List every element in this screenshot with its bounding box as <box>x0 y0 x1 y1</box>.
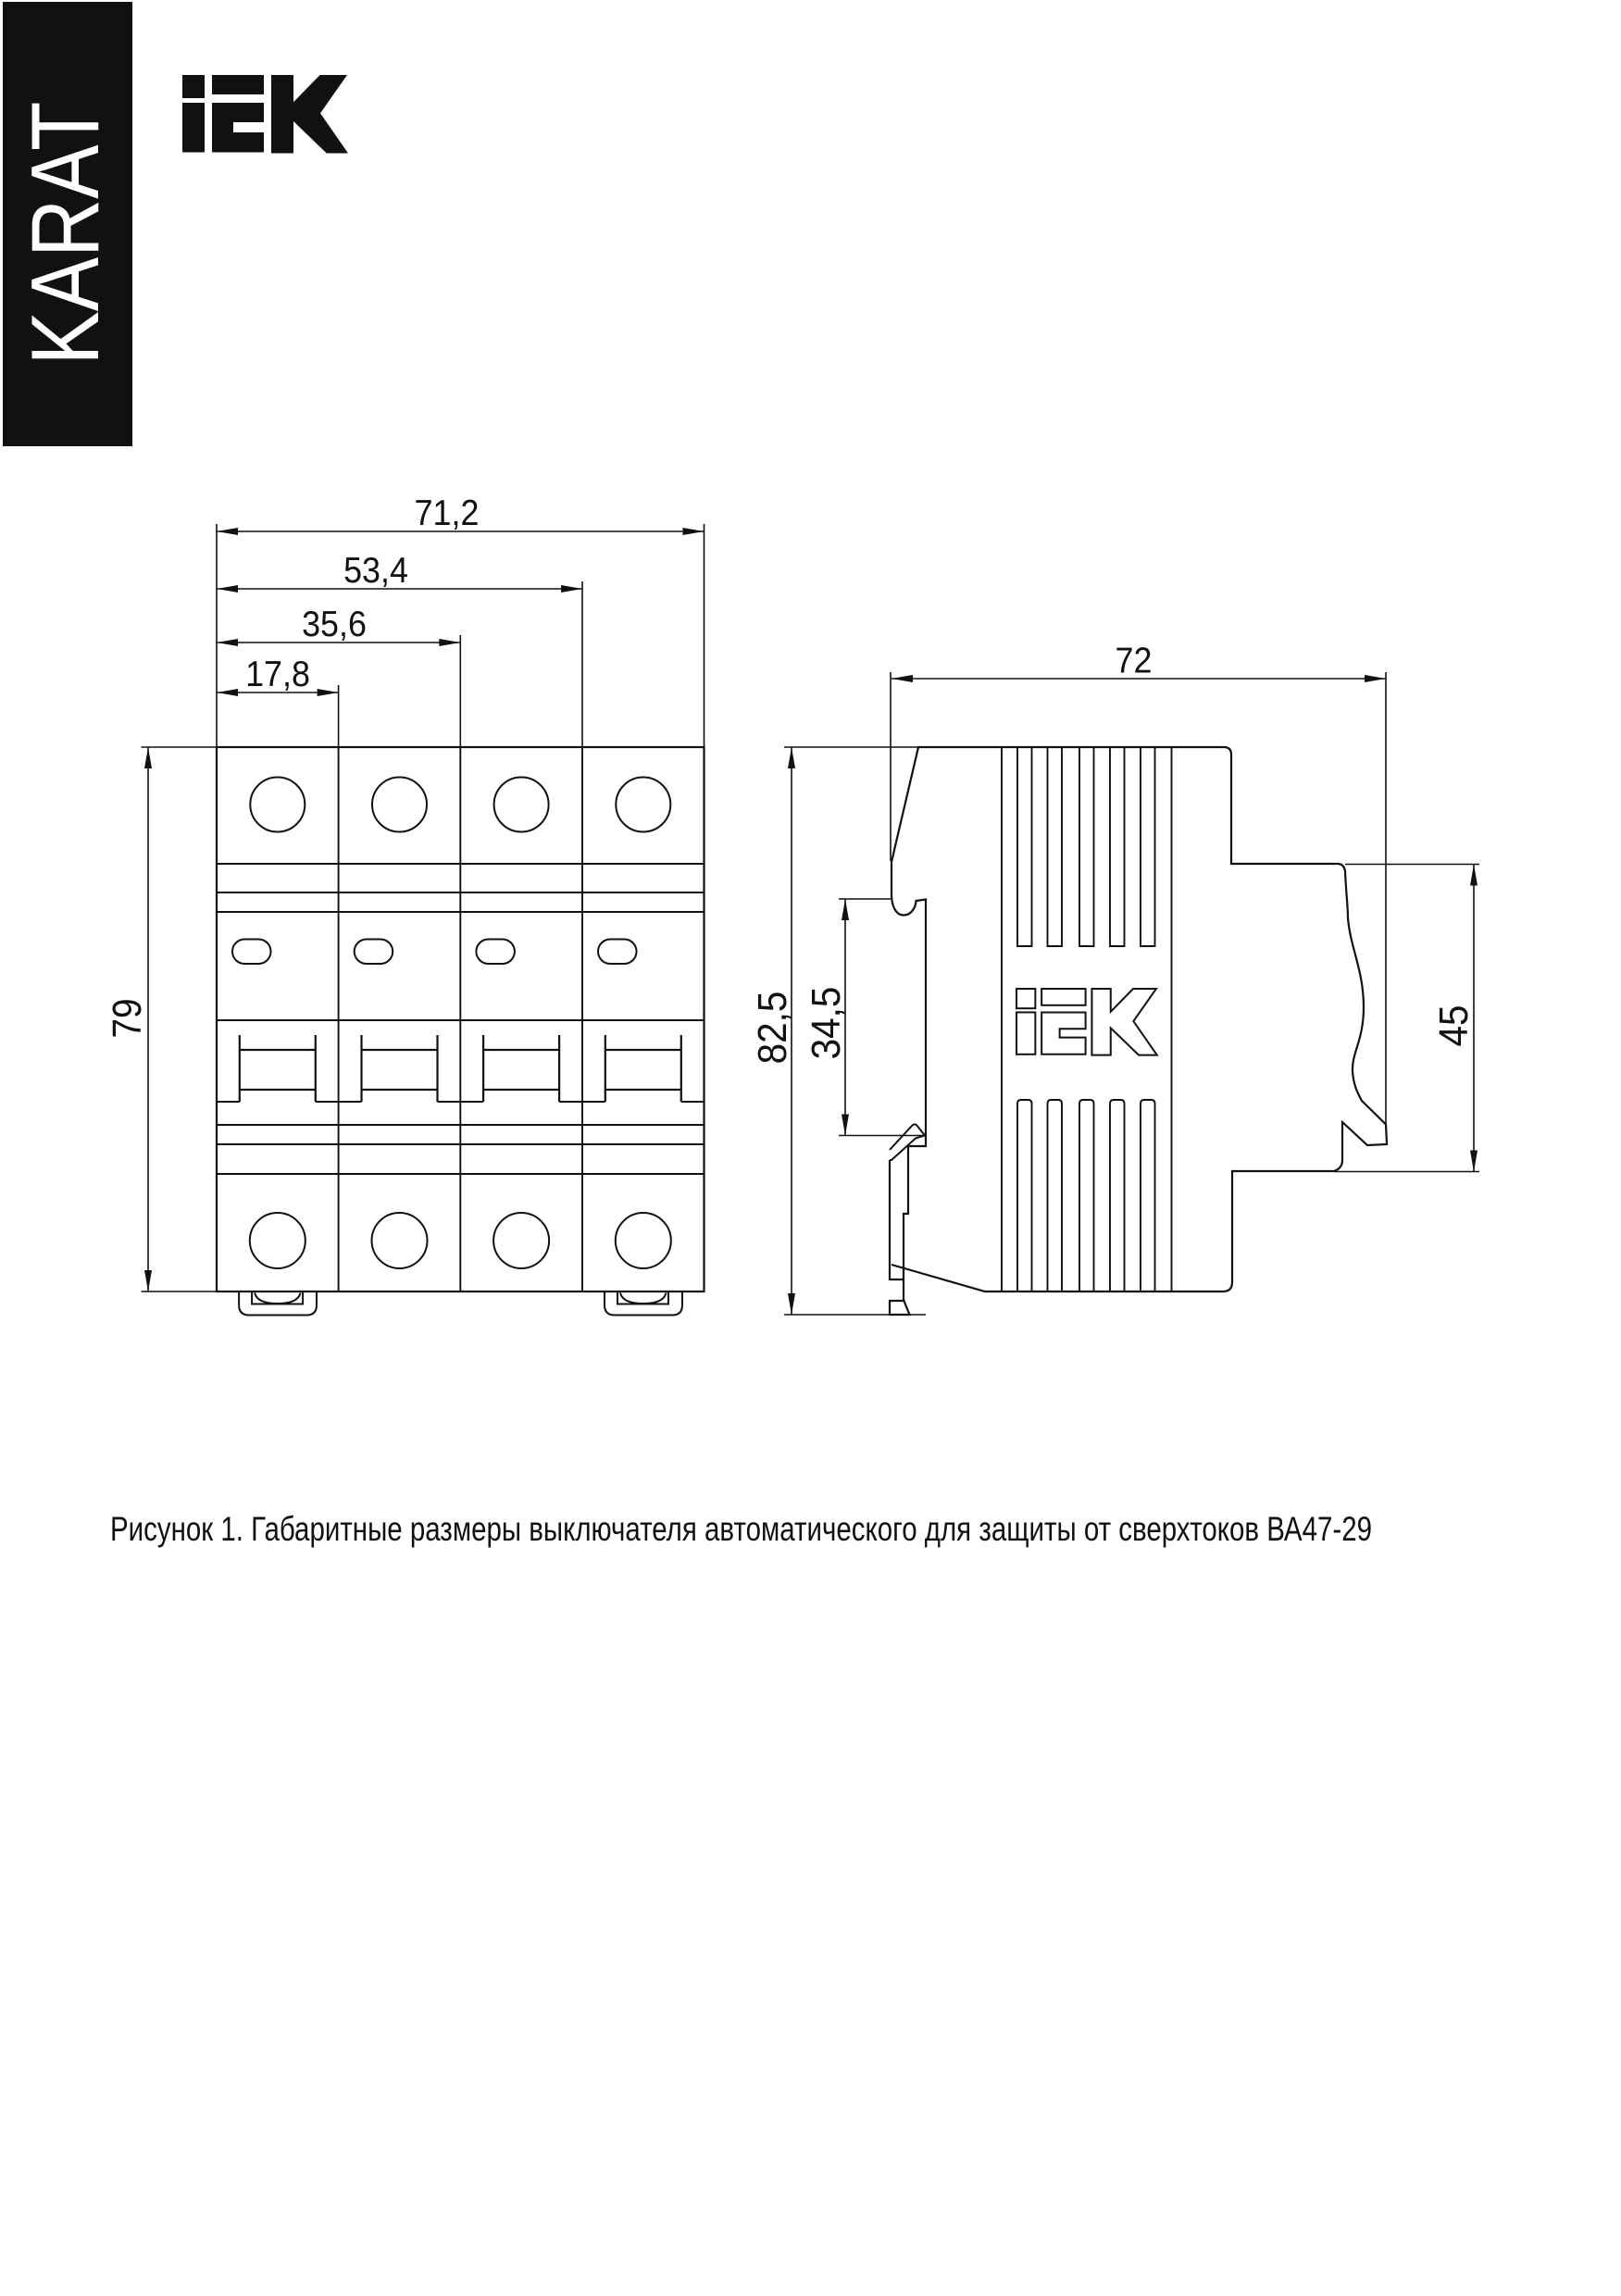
svg-text:71,2: 71,2 <box>415 493 480 533</box>
svg-text:35,6: 35,6 <box>302 604 367 644</box>
svg-text:82,5: 82,5 <box>749 992 794 1065</box>
svg-text:45: 45 <box>1430 1004 1476 1046</box>
svg-text:79: 79 <box>104 998 150 1038</box>
svg-text:17,8: 17,8 <box>245 654 310 694</box>
svg-text:53,4: 53,4 <box>343 550 408 591</box>
svg-text:KARAT: KARAT <box>12 102 119 366</box>
svg-text:72: 72 <box>1116 640 1153 680</box>
svg-text:34,5: 34,5 <box>803 987 848 1060</box>
svg-text:Рисунок 1. Габаритные размеры: Рисунок 1. Габаритные размеры выключател… <box>110 1510 1372 1548</box>
